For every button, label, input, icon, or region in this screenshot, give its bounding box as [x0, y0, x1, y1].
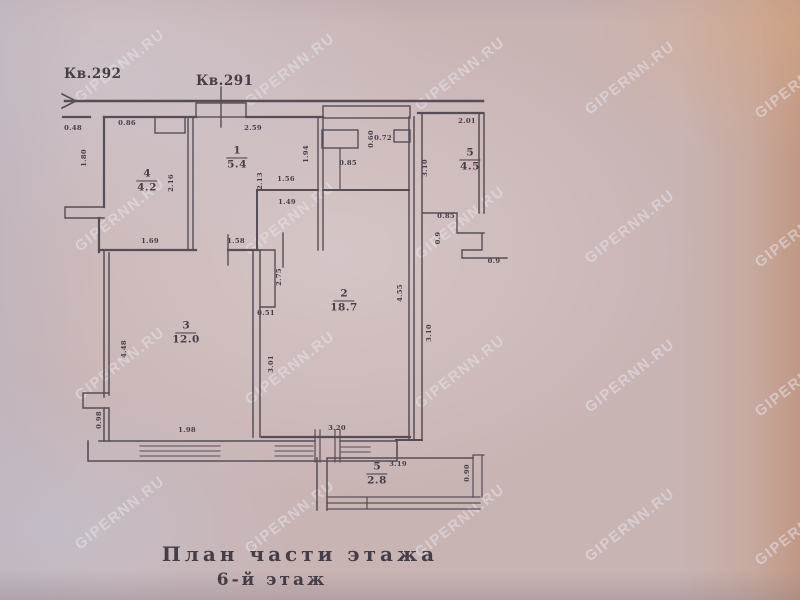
dimension-label: 1.69 — [141, 237, 159, 245]
dimension-label: 1.49 — [278, 198, 296, 206]
room-number: 1 — [226, 145, 247, 158]
room-label-2: 218.7 — [330, 288, 358, 313]
room-area: 4.5 — [459, 161, 480, 173]
floor-plan-photo: GIPERNN.RUGIPERNN.RUGIPERNN.RUGIPERNN.RU… — [0, 0, 800, 600]
dimension-label: 4.48 — [120, 340, 128, 358]
room-area: 2.8 — [366, 475, 387, 487]
room-area: 18.7 — [330, 302, 358, 314]
room-area: 12.0 — [172, 334, 200, 346]
plan-title: План части этажа — [162, 542, 438, 566]
room-label-1: 15.4 — [226, 145, 247, 170]
room-label-5: 52.8 — [366, 461, 387, 486]
dimension-label: 2.16 — [167, 174, 175, 192]
dimension-label: 0.60 — [367, 130, 375, 148]
dimension-label: 2.01 — [458, 117, 476, 125]
room-label-4: 44.2 — [136, 168, 157, 193]
room-label-3: 312.0 — [172, 320, 200, 345]
dimension-label: 0.48 — [64, 124, 82, 132]
dimension-label: 0.85 — [437, 212, 455, 220]
dimension-label: 1.56 — [277, 175, 295, 183]
room-area: 4.2 — [136, 182, 157, 194]
dimension-label: 0.98 — [95, 411, 103, 429]
dimension-label: 0.9 — [488, 257, 501, 265]
dimension-label: 3.01 — [267, 355, 275, 373]
dimension-label: 3.20 — [328, 424, 346, 432]
dimension-label: 1.94 — [302, 145, 310, 163]
caption-apartment-291: Кв.291 — [196, 73, 254, 89]
dimension-label: 0.86 — [118, 119, 136, 127]
room-label-5: 54.5 — [459, 147, 480, 172]
caption-apartment-292: Кв.292 — [64, 66, 122, 82]
dimension-label: 1.58 — [227, 237, 245, 245]
room-number: 5 — [459, 147, 480, 160]
dimension-label: 0.51 — [257, 309, 275, 317]
dimension-label: 1.80 — [80, 149, 88, 167]
dimension-label: 0.72 — [374, 134, 392, 142]
dimension-label: 0.9 — [434, 232, 442, 245]
dimension-label: 0.90 — [463, 464, 471, 482]
dimension-label: 3.10 — [425, 324, 433, 342]
dimension-label: 2.75 — [275, 268, 283, 286]
dimension-label: 1.98 — [178, 426, 196, 434]
dimension-label: 0.85 — [339, 159, 357, 167]
dimension-label: 3.19 — [389, 460, 407, 468]
room-number: 3 — [175, 320, 196, 333]
room-number: 5 — [366, 461, 387, 474]
dimension-label: 2.59 — [244, 124, 262, 132]
dimension-label: 4.55 — [396, 284, 404, 302]
dimension-label: 3.10 — [421, 159, 429, 177]
room-number: 4 — [136, 168, 157, 181]
room-number: 2 — [333, 288, 354, 301]
dimension-label: 2.13 — [256, 172, 264, 190]
room-area: 5.4 — [226, 159, 247, 171]
plan-floor-subtitle: 6-й этаж — [217, 570, 327, 590]
